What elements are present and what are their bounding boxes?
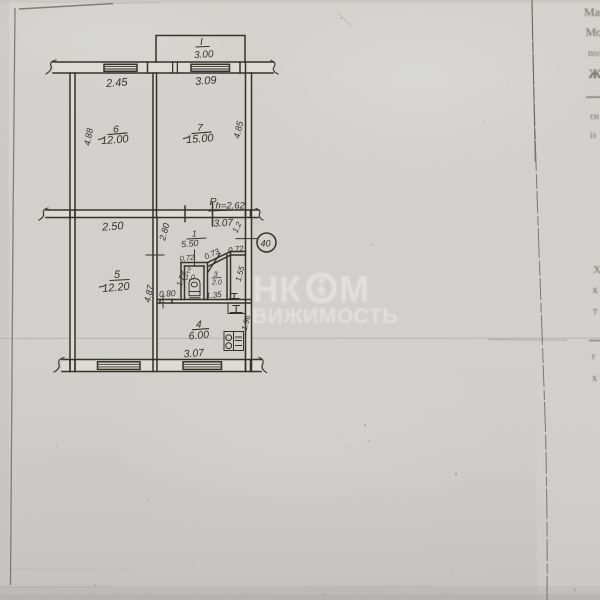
svg-text:1.35: 1.35 (206, 290, 223, 300)
svg-text:1: 1 (192, 229, 197, 239)
svg-text:3.07: 3.07 (183, 347, 205, 360)
svg-text:Мач: Мач (584, 5, 600, 19)
svg-text:12.20: 12.20 (102, 281, 131, 295)
svg-text:40: 40 (261, 239, 271, 249)
svg-text:5.50: 5.50 (181, 238, 199, 249)
svg-text:2.50: 2.50 (101, 220, 125, 234)
svg-text:сн: сн (590, 111, 599, 121)
svg-text:3.09: 3.09 (195, 74, 217, 87)
svg-text:НК: НК (253, 269, 302, 310)
svg-text:2.0: 2.0 (211, 280, 222, 287)
svg-text:т: т (593, 306, 598, 317)
svg-text:2.45: 2.45 (105, 76, 129, 90)
svg-text:г: г (592, 351, 596, 361)
svg-text:Мо: Мо (586, 25, 600, 39)
svg-text:Жи: Жи (589, 66, 600, 81)
svg-text:0.72: 0.72 (179, 253, 195, 264)
svg-text:із: із (590, 130, 597, 140)
svg-text:ВИЖИМОСТЬ: ВИЖИМОСТЬ (252, 305, 398, 328)
svg-text:к: к (593, 285, 598, 296)
svg-text:5: 5 (114, 269, 121, 281)
svg-text:Х: Х (593, 264, 600, 276)
svg-text:пол: пол (588, 48, 600, 58)
svg-text:0.80: 0.80 (159, 288, 176, 299)
svg-text:х: х (592, 373, 597, 384)
svg-text:6.00: 6.00 (188, 329, 210, 343)
svg-text:3.00: 3.00 (194, 49, 214, 61)
svg-text:3.07: 3.07 (213, 218, 233, 230)
svg-text:12.00: 12.00 (101, 133, 130, 147)
svg-text:М: М (339, 269, 369, 310)
svg-text:15.00: 15.00 (186, 132, 215, 146)
